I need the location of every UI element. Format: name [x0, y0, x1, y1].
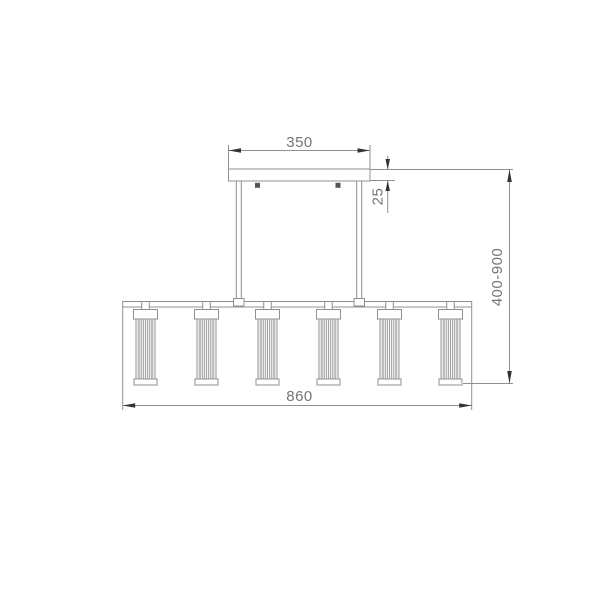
- rod-collar-right-front: [354, 299, 365, 307]
- rod-collar-left-front: [234, 299, 245, 307]
- dimension-suspension-length: 400-900: [463, 170, 513, 384]
- arrowhead-right: [459, 403, 472, 408]
- mounting-screw-right: [336, 183, 341, 188]
- arrowhead-left: [229, 148, 242, 153]
- arrowhead-up: [507, 170, 512, 183]
- lamp-shade-4: [317, 302, 341, 386]
- technical-drawing-canvas: 350 25: [0, 0, 600, 600]
- lamp-shade-5: [378, 302, 402, 386]
- dimension-label-400-900: 400-900: [489, 248, 506, 307]
- mounting-screw-left: [255, 183, 260, 188]
- lamp-shade-6: [439, 302, 463, 386]
- dimension-label-350: 350: [286, 134, 313, 151]
- pendant-light-drawing: 350 25: [0, 0, 600, 600]
- fixture-bar: [123, 302, 472, 308]
- arrowhead-right: [358, 148, 371, 153]
- lamp-shade-3: [256, 302, 280, 386]
- dimension-label-25: 25: [370, 188, 387, 206]
- lamp-shade-2: [195, 302, 219, 386]
- suspension-rod-left: [234, 181, 245, 306]
- ceiling-canopy: [229, 169, 371, 188]
- suspension-rod-right: [354, 181, 365, 306]
- dimension-fixture-length: 860: [123, 307, 472, 410]
- lamp-shade-1: [134, 302, 158, 386]
- dimension-canopy-thickness: 25: [370, 156, 391, 213]
- dimension-label-860: 860: [286, 388, 313, 405]
- dimension-canopy-width: 350: [229, 134, 371, 169]
- arrowhead-down: [507, 371, 512, 384]
- arrowhead-down: [386, 159, 391, 170]
- arrowhead-left: [123, 403, 136, 408]
